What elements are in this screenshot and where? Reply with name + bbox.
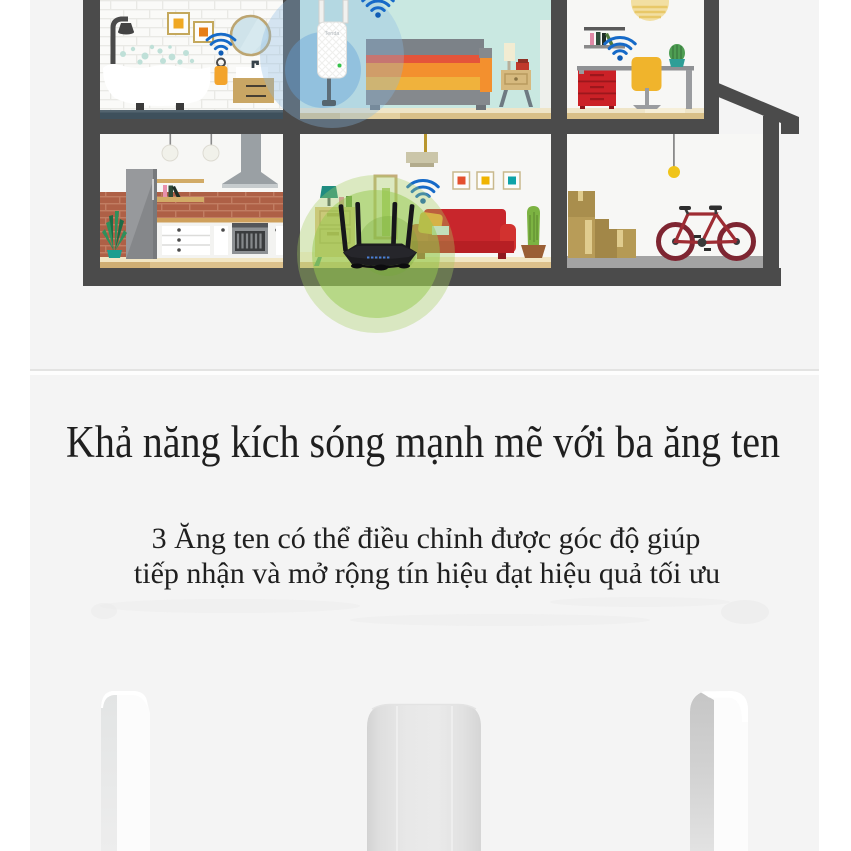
svg-text:Khả năng kích sóng mạnh mẽ với: Khả năng kích sóng mạnh mẽ với ba ăng te…: [66, 417, 780, 467]
svg-text:tiếp nhận và mở rộng tín hiệu: tiếp nhận và mở rộng tín hiệu đạt hiệu q…: [134, 557, 720, 590]
svg-text:3 Ăng ten có thể điều chỉnh đư: 3 Ăng ten có thể điều chỉnh được góc độ …: [152, 522, 701, 555]
svg-text:Tenda: Tenda: [325, 31, 341, 37]
